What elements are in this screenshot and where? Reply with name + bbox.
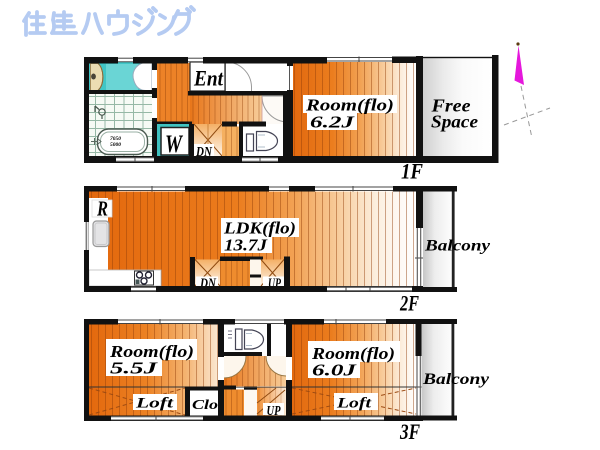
svg-text:2F: 2F bbox=[399, 291, 419, 316]
svg-text:1F: 1F bbox=[401, 159, 423, 184]
svg-text:6.2J: 6.2J bbox=[310, 113, 355, 132]
svg-text:Space: Space bbox=[431, 112, 478, 132]
svg-text:5000: 5000 bbox=[110, 142, 121, 148]
svg-text:5.5J: 5.5J bbox=[110, 359, 158, 378]
svg-text:Loft: Loft bbox=[336, 396, 372, 412]
svg-text:Loft: Loft bbox=[135, 396, 175, 412]
svg-text:3F: 3F bbox=[399, 419, 420, 444]
svg-text:Ent: Ent bbox=[193, 66, 224, 91]
svg-text:13.7J: 13.7J bbox=[224, 236, 268, 255]
svg-text:W: W bbox=[165, 131, 183, 158]
svg-text:R: R bbox=[96, 197, 108, 221]
svg-text:6.0J: 6.0J bbox=[312, 361, 357, 380]
svg-text:Clo: Clo bbox=[192, 398, 218, 413]
svg-text:Balcony: Balcony bbox=[422, 371, 490, 388]
svg-text:Balcony: Balcony bbox=[424, 238, 491, 255]
